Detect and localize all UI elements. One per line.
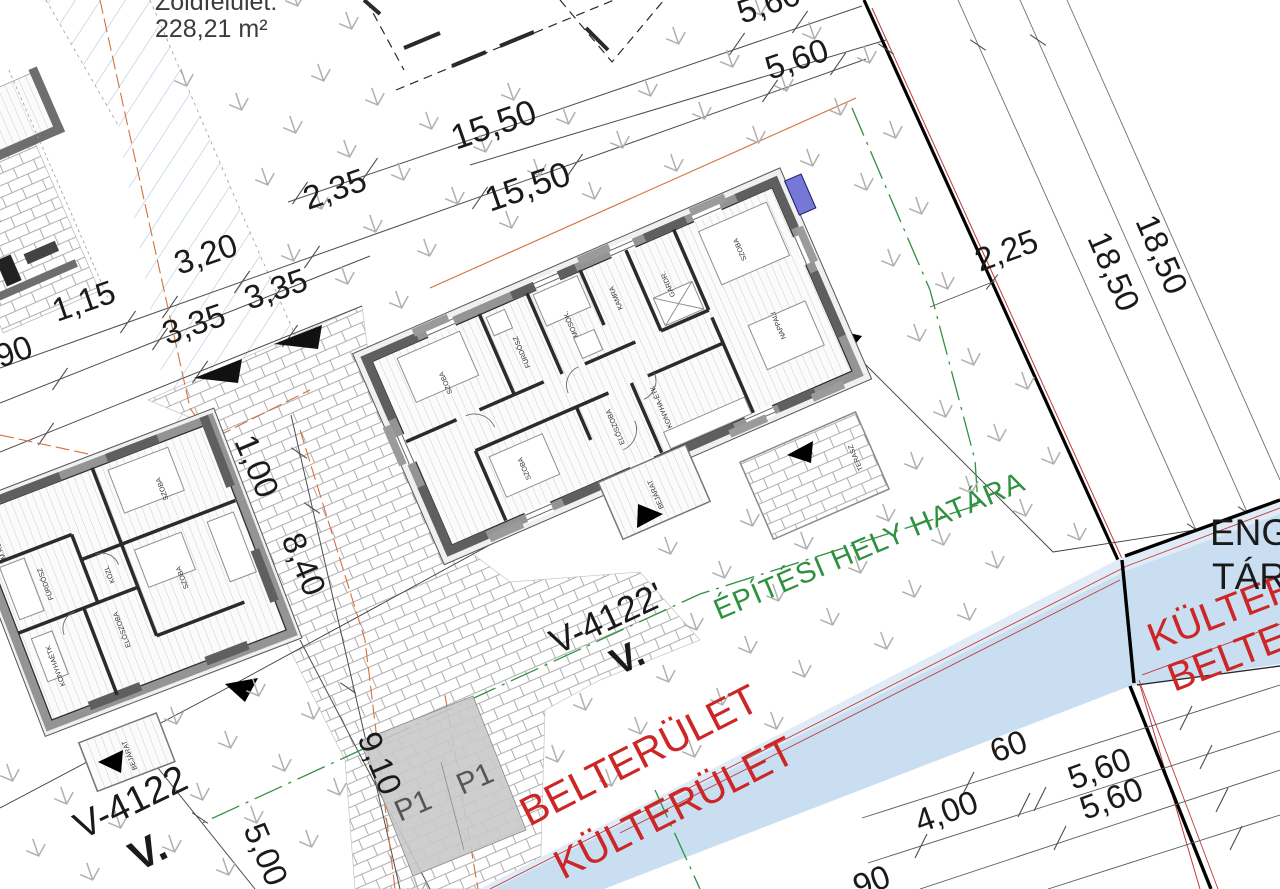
svg-text:Zöldfelület:: Zöldfelület: (155, 0, 277, 16)
svg-text:ENGE: ENGE (1210, 512, 1280, 553)
svg-text:TÁRG: TÁRG (1212, 556, 1280, 597)
svg-text:228,21 m²: 228,21 m² (155, 15, 268, 43)
